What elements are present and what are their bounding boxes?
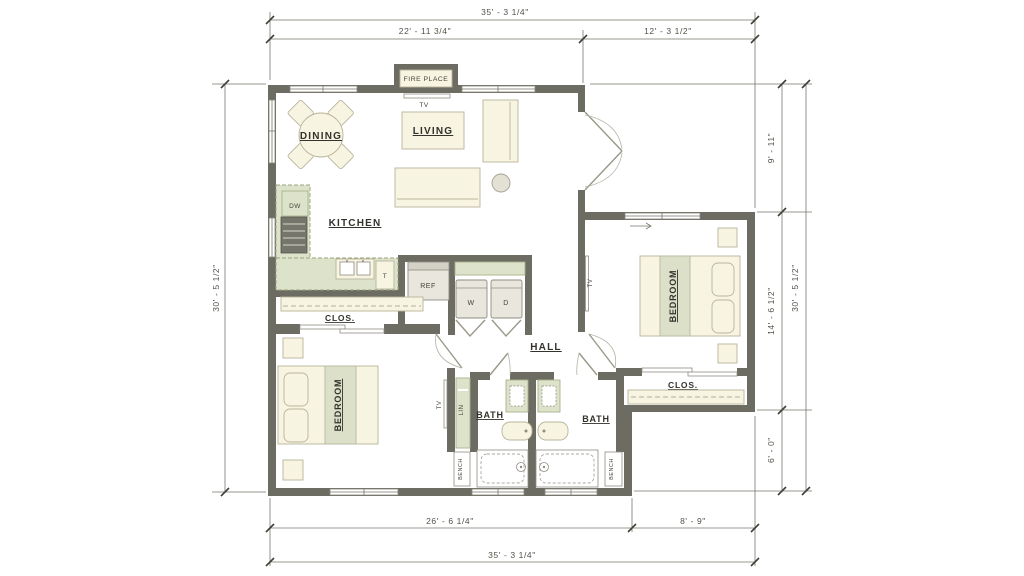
laundry-shelf (455, 262, 525, 275)
dryer-label: D (503, 300, 509, 307)
bedroom-right-door (589, 334, 616, 368)
dryer (491, 280, 522, 318)
bath-left-label: BATH (476, 410, 504, 420)
washer (456, 280, 487, 318)
bedroom-left-door (436, 334, 462, 368)
bath-left-area: LIN BENCH BATH (454, 378, 532, 487)
window-bedroom-right-top (625, 213, 700, 219)
nightstand (718, 344, 737, 363)
sofa-vertical (483, 100, 518, 162)
pillow (284, 373, 308, 406)
nightstand (283, 460, 303, 480)
side-table (492, 174, 510, 192)
pillow (284, 409, 308, 442)
dim-top-right: 12' - 3 1/2" (644, 26, 692, 36)
vanity-right (538, 380, 560, 412)
window-top-2 (462, 86, 535, 92)
trash-label: T (383, 273, 387, 280)
bench-right: BENCH (605, 452, 622, 486)
dim-top-overall: 35' - 3 1/4" (481, 7, 529, 17)
toilet-right (538, 422, 568, 440)
toilet-left (502, 422, 532, 440)
dining-area: DINING (287, 100, 354, 170)
dim-bottom-overall: 35' - 3 1/4" (488, 550, 536, 560)
bath-right-area: BENCH BATH (536, 380, 622, 487)
refrigerator (408, 262, 449, 300)
window-left-2 (269, 218, 275, 257)
floor-plan-drawing: 35' - 3 1/4" 22' - 11 3/4" 12' - 3 1/2" … (0, 0, 1024, 576)
kitchen-sink (336, 259, 374, 279)
washer-label: W (467, 300, 474, 307)
closet-left-doors (300, 325, 384, 333)
bath-left-door (490, 353, 510, 375)
dishwasher-label: DW (289, 203, 301, 210)
tv-bedroom-left-label: TV (437, 401, 443, 410)
window-bath-right (545, 489, 597, 495)
pillow (712, 263, 734, 296)
dim-top-left: 22' - 11 3/4" (399, 26, 451, 36)
hall-label: HALL (530, 342, 561, 353)
bed-right: BEDROOM (640, 256, 740, 336)
closet-left-label: CLOS. (325, 313, 355, 323)
patio-double-door (585, 112, 622, 190)
bench-left-label: BENCH (458, 458, 464, 480)
tv-living-label: TV (419, 102, 428, 109)
refrigerator-label: REF (420, 283, 436, 290)
bedroom-right-label: BEDROOM (668, 270, 678, 323)
tub-right (536, 450, 598, 487)
dim-right-middle: 14' - 6 1/2" (766, 287, 776, 335)
bedroom-right-area: BEDROOM TV (586, 228, 741, 363)
bath-right-door (577, 353, 597, 375)
tub-left (477, 450, 528, 487)
floor-plan-page: 35' - 3 1/4" 22' - 11 3/4" 12' - 3 1/2" … (0, 0, 1024, 576)
bath-right-label: BATH (582, 414, 610, 424)
dim-right-top: 9' - 11" (766, 133, 776, 164)
closet-right: CLOS. (628, 380, 744, 404)
dim-left-overall: 30' - 5 1/2" (211, 264, 221, 312)
bed-left: BEDROOM (278, 366, 378, 444)
bedroom-left-area: BEDROOM TV (278, 338, 447, 480)
nightstand (283, 338, 303, 358)
window-left-1 (269, 100, 275, 163)
washer-dryer-bifold-doors (456, 320, 521, 336)
dining-label: DINING (300, 131, 342, 142)
closet-right-label: CLOS. (668, 380, 698, 390)
laundry-area: W D (455, 262, 525, 318)
kitchen-label: KITCHEN (329, 218, 382, 229)
nightstand (718, 228, 737, 247)
tv-bedroom-right-label: TV (588, 279, 594, 288)
vanity-left (506, 380, 528, 412)
dim-right-overall: 30' - 5 1/2" (790, 264, 800, 312)
bench-right-label: BENCH (609, 458, 615, 480)
sofa-horizontal (395, 168, 480, 207)
window-top-1 (290, 86, 357, 92)
dim-bottom-left: 26' - 6 1/4" (426, 516, 474, 526)
tv-console (404, 94, 450, 98)
living-label: LIVING (413, 126, 454, 137)
living-area: TV LIVING (395, 100, 518, 207)
tv-bedroom-left (444, 380, 447, 428)
window-bedroom-left-bottom (330, 489, 398, 495)
bedroom-left-label: BEDROOM (333, 379, 343, 432)
window-bath-left (472, 489, 524, 495)
oven-range (281, 217, 307, 253)
pillow (712, 300, 734, 333)
fireplace-label: FIRE PLACE (404, 76, 449, 83)
linen-label: LIN (459, 405, 465, 416)
dim-bottom-right: 8' - 9" (680, 516, 706, 526)
dim-right-bottom: 6' - 0" (766, 437, 776, 463)
bench-left: BENCH (454, 452, 470, 486)
